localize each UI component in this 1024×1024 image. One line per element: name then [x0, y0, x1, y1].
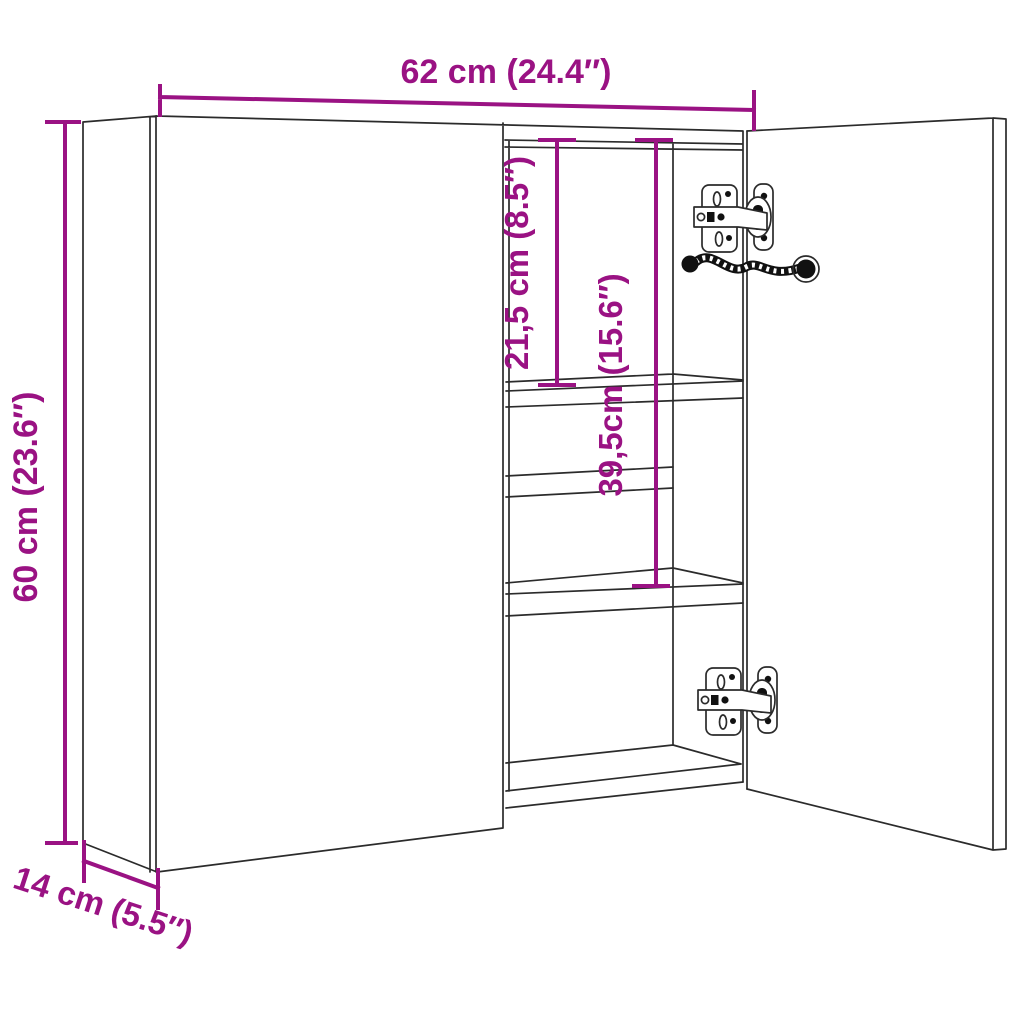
- product-dimension-diagram: 62 cm (24.4″) 60 cm (23.6″) 21,5 cm (8.5…: [0, 0, 1024, 1024]
- cable-end-right: [797, 260, 816, 279]
- upper-compartments-dimension-line: [634, 140, 671, 586]
- top-compartment-dimension-label: 21,5 cm (8.5″): [498, 156, 535, 370]
- cabinet-line-art: [83, 116, 1006, 872]
- shelf-middle: [506, 467, 673, 497]
- bottom-hinge: [698, 667, 777, 735]
- cable-end-left: [682, 256, 699, 273]
- cabinet-bottom-panel: [506, 745, 743, 808]
- hinge-cable: [682, 256, 820, 283]
- dimension-lines: [47, 86, 754, 908]
- shelf-bottom: [506, 568, 743, 616]
- top-hinge: [694, 184, 773, 252]
- diagram-canvas: 62 cm (24.4″) 60 cm (23.6″) 21,5 cm (8.5…: [0, 0, 1024, 1024]
- height-dimension-line: [47, 122, 79, 843]
- height-dimension-label: 60 cm (23.6″): [7, 392, 45, 603]
- dimension-labels: 62 cm (24.4″) 60 cm (23.6″) 21,5 cm (8.5…: [7, 53, 629, 951]
- width-dimension-label: 62 cm (24.4″): [401, 53, 612, 91]
- depth-dimension-label: 14 cm (5.5″): [9, 859, 198, 952]
- open-door-outline: [747, 118, 1006, 850]
- cabinet-carcass-outline: [83, 116, 747, 872]
- width-dimension-line: [160, 86, 754, 129]
- upper-compartments-dimension-label: 39,5cm (15.6″): [592, 273, 629, 496]
- top-compartment-dimension-line: [540, 140, 574, 385]
